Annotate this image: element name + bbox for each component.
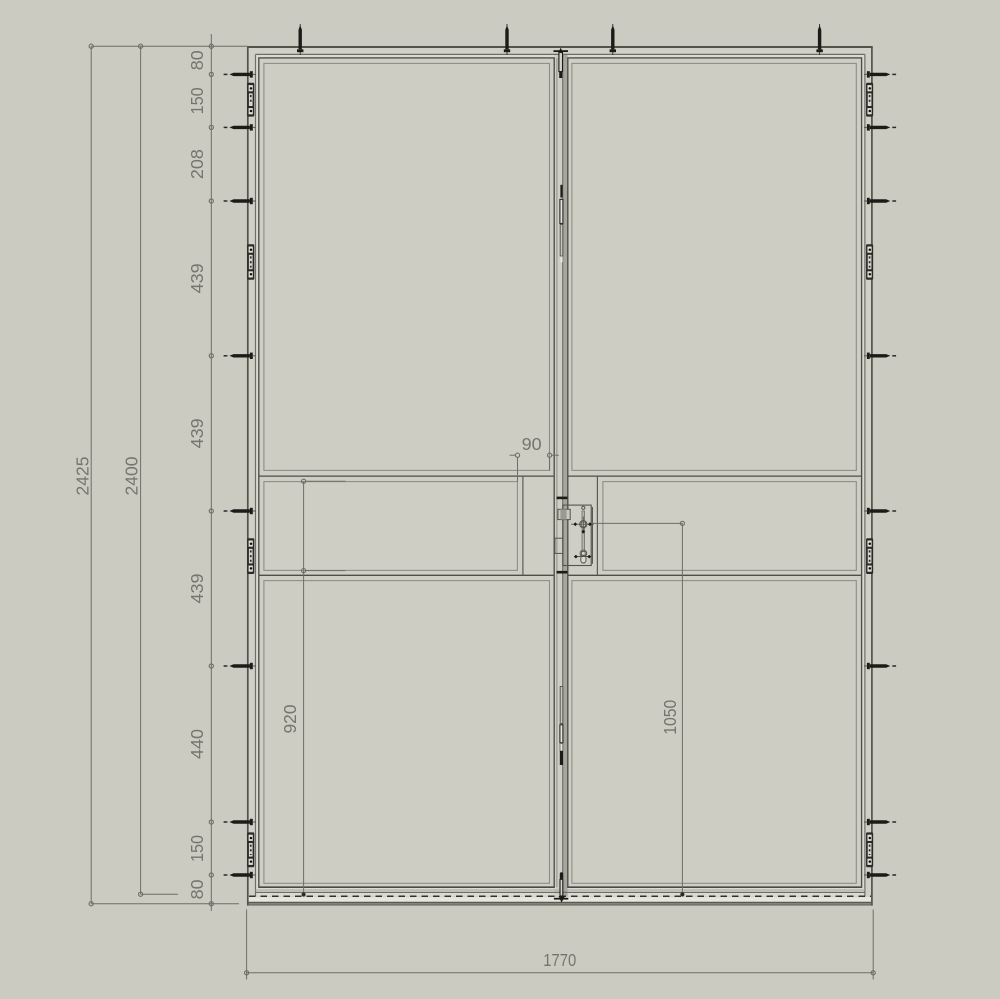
svg-text:920: 920 [280,704,300,733]
svg-text:2400: 2400 [122,456,142,495]
svg-text:440: 440 [187,729,207,759]
svg-text:2425: 2425 [73,456,93,495]
svg-text:439: 439 [187,263,207,293]
svg-text:80: 80 [187,50,207,70]
svg-text:80: 80 [187,879,207,899]
svg-text:150: 150 [187,835,207,862]
svg-text:439: 439 [187,574,207,604]
svg-text:1770: 1770 [543,950,576,970]
svg-text:90: 90 [522,434,542,454]
svg-text:1050: 1050 [660,700,680,735]
svg-text:150: 150 [187,87,207,114]
svg-text:439: 439 [187,418,207,448]
svg-text:208: 208 [187,149,207,179]
